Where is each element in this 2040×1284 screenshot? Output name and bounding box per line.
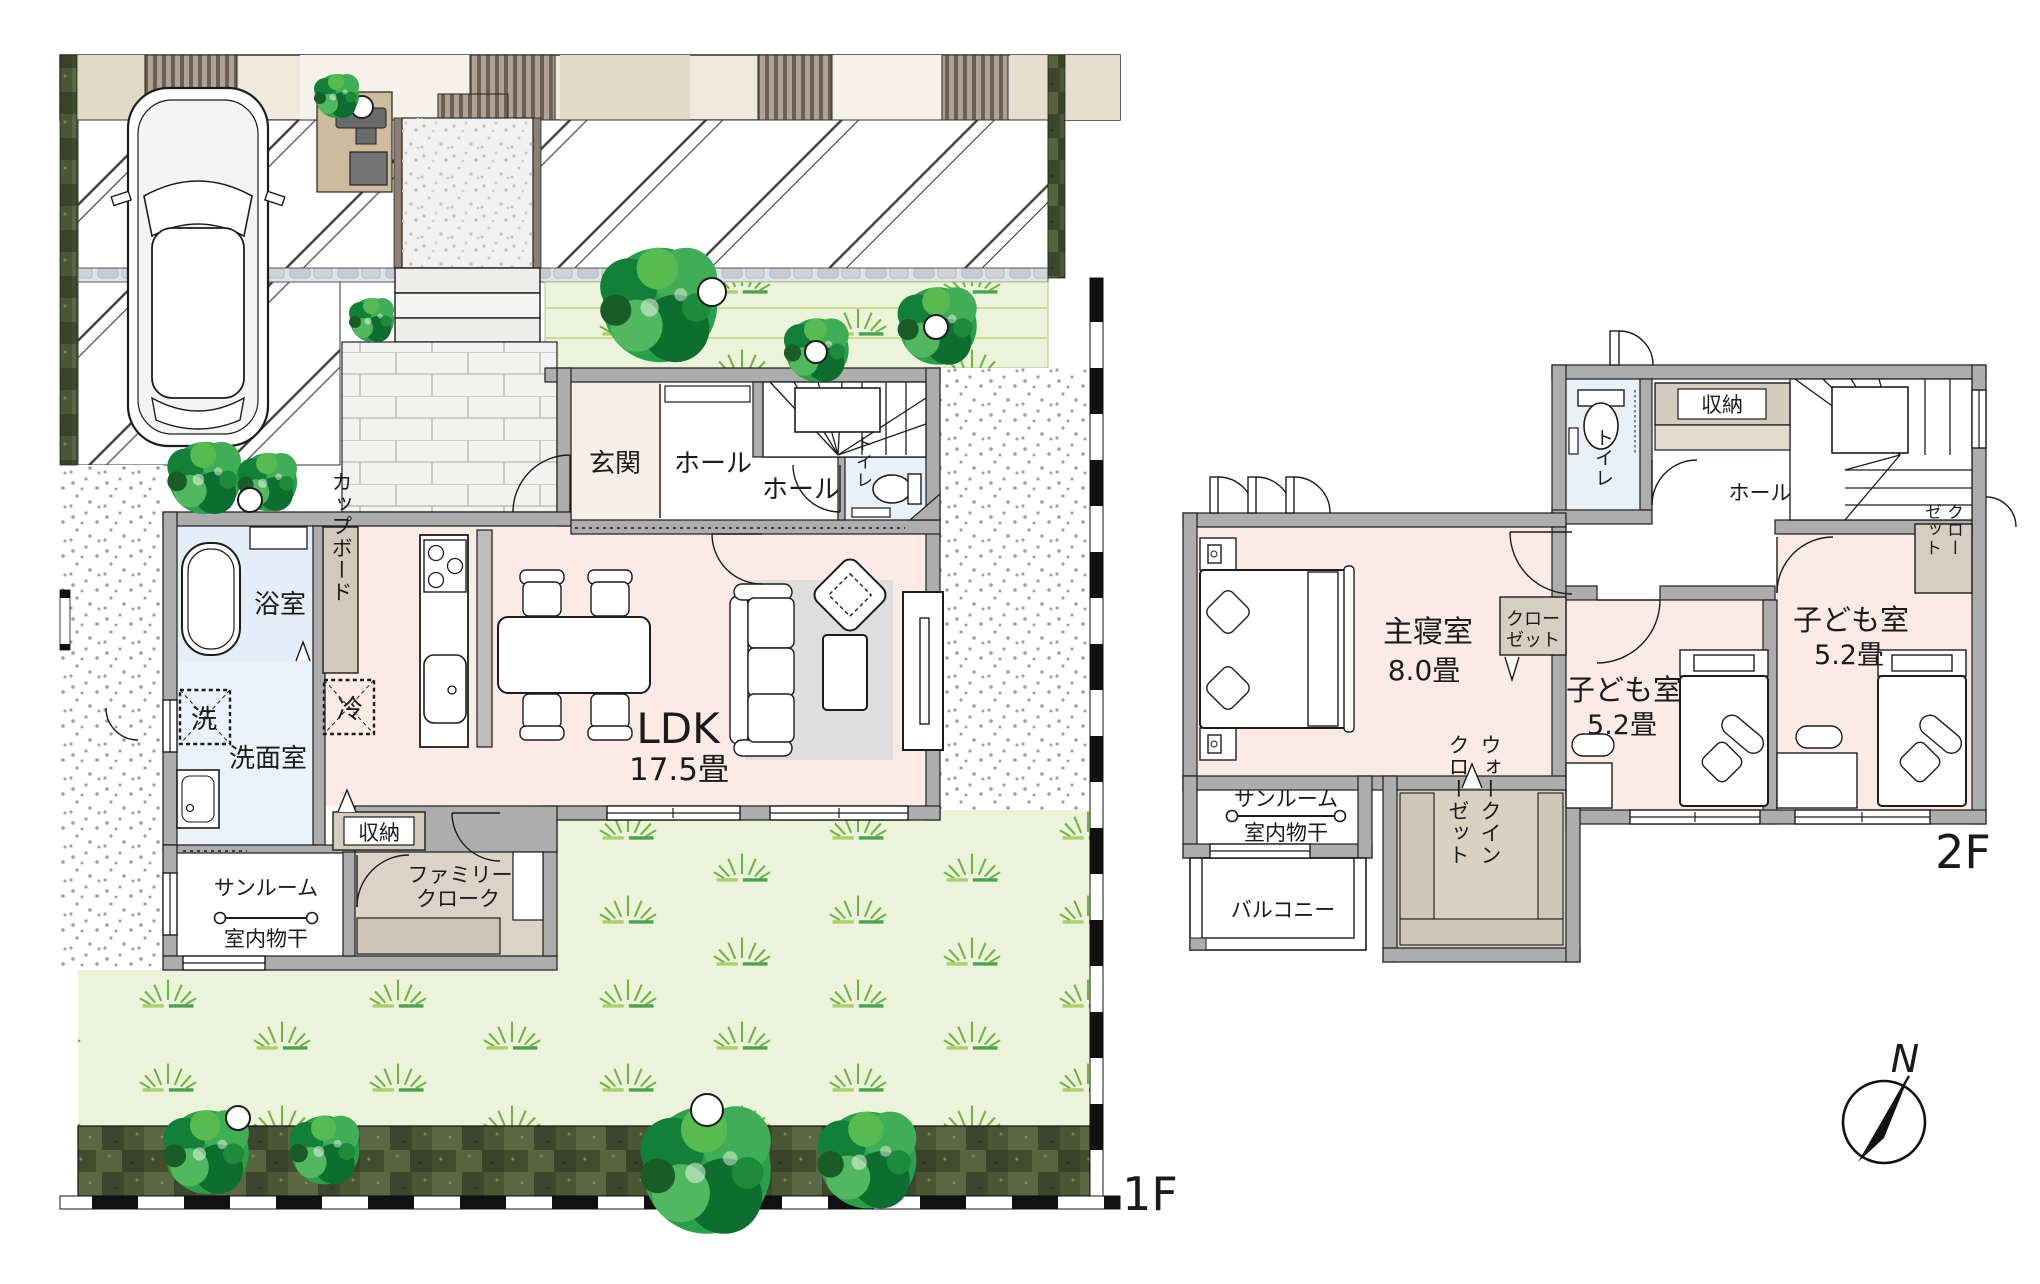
label-closet-master-1: クロー [1506, 609, 1560, 630]
label-toilet-2f: トイレ [1592, 428, 1614, 488]
tv [920, 618, 929, 724]
coffee-table [823, 635, 867, 710]
label-closet-child2-c1: クロー [1943, 503, 1963, 557]
hedge-right-top [1048, 55, 1065, 278]
label-familycloak-1: ファミリー [408, 863, 513, 887]
master-bed [1200, 538, 1354, 760]
dining-table [498, 617, 650, 693]
label-hall-2f: ホール [1729, 481, 1792, 505]
label-sunroom-1f: サンルーム [214, 876, 318, 900]
label-wic-c2: クローゼット [1446, 734, 1470, 866]
label-drying-1f: 室内物干 [224, 927, 308, 951]
counter-back-panel [477, 530, 492, 747]
label-bathroom: 浴室 [254, 590, 306, 620]
label-child2: 子ども室 [1793, 603, 1909, 637]
label-ldk-size: 17.5畳 [629, 752, 729, 788]
label-fridge: 冷 [337, 695, 363, 725]
label-closet-child2-c2: ゼット [1921, 503, 1941, 557]
label-toilet-1f: トイレ [852, 435, 872, 489]
label-washroom: 洗面室 [229, 744, 307, 774]
gravel-court [394, 94, 541, 268]
label-child1-size: 5.2畳 [1587, 710, 1657, 741]
label-child1: 子ども室 [1566, 673, 1682, 707]
label-familycloak-2: クローク [416, 887, 500, 911]
label-master: 主寝室 [1383, 615, 1473, 650]
label-storage-2f: 収納 [1701, 393, 1743, 417]
label-child2-size: 5.2畳 [1814, 640, 1884, 671]
label-cupboard: カップボード [329, 471, 353, 603]
label-genkan: 玄関 [589, 449, 641, 479]
plan-2f: トイレ 収納 ホール クロー ゼット 主寝室 8.0畳 クロー ゼット 子ども室… [1183, 331, 2016, 962]
entrance-steps [395, 268, 540, 342]
sink [424, 655, 466, 723]
bedroom-awning-windows [1210, 477, 1330, 513]
floorplan-svg: 玄関 ホール ホール トイレ 浴室 洗 洗面室 カップボード 冷 LDK 17.… [0, 0, 2040, 1284]
label-ldk: LDK [636, 704, 721, 753]
label-wic-c1: ウォークイン [1478, 734, 1502, 866]
floorplan-page: 玄関 ホール ホール トイレ 浴室 洗 洗面室 カップボード 冷 LDK 17.… [0, 0, 2040, 1284]
hedge-left [60, 55, 77, 465]
hall-cabinet [665, 386, 750, 402]
label-master-size: 8.0畳 [1388, 654, 1461, 687]
compass-north-label: N [1891, 1037, 1919, 1081]
label-sunroom-2f: サンルーム [1234, 787, 1338, 811]
label-2f: 2F [1935, 825, 1991, 879]
label-closet-master-2: ゼット [1506, 630, 1560, 651]
entrance-porch [342, 342, 557, 512]
label-hall: ホール [674, 449, 752, 479]
label-1f: 1F [1122, 1167, 1178, 1221]
label-hall2: ホール [762, 475, 840, 505]
label-balcony: バルコニー [1231, 898, 1336, 922]
west-gravel-dots [60, 465, 163, 970]
label-drying-2f: 室内物干 [1244, 821, 1328, 845]
stairs-2f [1790, 379, 1972, 520]
east-gravel-dots [940, 368, 1090, 810]
label-storage-1f: 収納 [358, 821, 400, 845]
vanity [177, 770, 219, 828]
label-washer: 洗 [191, 705, 217, 735]
car [111, 88, 285, 446]
compass: N [1843, 1037, 1925, 1163]
stairs-1f [763, 382, 926, 457]
